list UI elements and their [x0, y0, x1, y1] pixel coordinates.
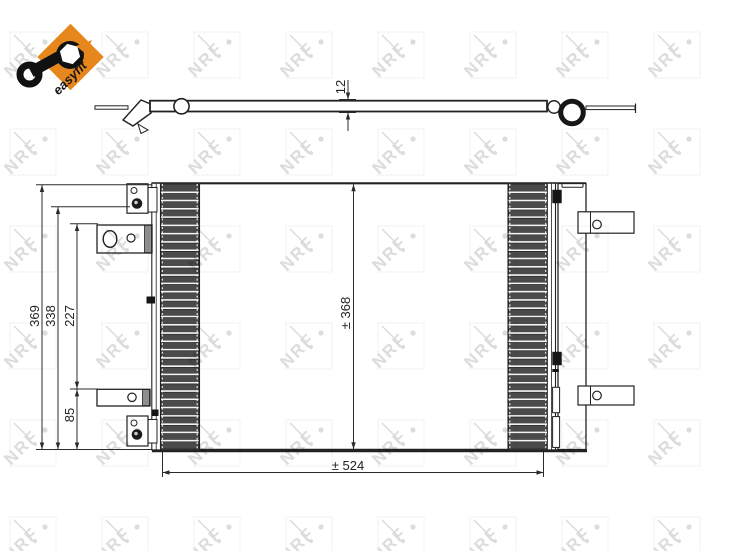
watermark-tile: NRF — [368, 420, 424, 469]
watermark-text: NRF — [644, 232, 686, 274]
watermark-text: NRF — [460, 38, 502, 80]
watermark-text: NRF — [368, 329, 410, 371]
watermark-text: NRF — [644, 329, 686, 371]
watermark-tile: NRF — [92, 226, 148, 275]
watermark-text: NRF — [552, 232, 594, 274]
watermark-tile: NRF — [368, 129, 424, 178]
watermark-text: NRF — [184, 329, 226, 371]
watermark-tile: NRF — [368, 517, 424, 551]
watermark-text: NRF — [644, 38, 686, 80]
watermark-tile: NRF — [92, 323, 148, 372]
watermark-text: NRF — [368, 38, 410, 80]
watermark-tile: NRF — [92, 517, 148, 551]
watermark-tile: NRF — [0, 129, 56, 178]
watermark-text: NRF — [552, 38, 594, 80]
watermark-tile: NRF — [0, 323, 56, 372]
watermark-tile: NRF — [644, 32, 700, 81]
watermark-text: NRF — [276, 135, 318, 177]
watermark-tile: NRF — [552, 32, 608, 81]
watermark-tile: NRF — [276, 420, 332, 469]
watermark-tile: NRF — [0, 517, 56, 551]
technical-drawing-page: 12 — [0, 0, 731, 551]
watermark-text: NRF — [276, 38, 318, 80]
watermark-text: NRF — [368, 232, 410, 274]
watermark-tile: NRF — [184, 226, 240, 275]
watermark-text: NRF — [276, 329, 318, 371]
watermark-tile: NRF — [644, 420, 700, 469]
watermark-text: NRF — [276, 426, 318, 468]
watermark-tile: NRF — [644, 129, 700, 178]
watermark-tile: NRF — [368, 323, 424, 372]
watermark-tile: NRF — [184, 420, 240, 469]
watermark-text: NRF — [184, 135, 226, 177]
watermark-tile: NRF — [276, 226, 332, 275]
easyfit-badge: easyfit — [0, 0, 130, 130]
watermark-tile: NRF — [184, 517, 240, 551]
watermark-tile: NRF — [0, 226, 56, 275]
watermark-tile: NRF — [184, 32, 240, 81]
watermark-text: NRF — [644, 426, 686, 468]
watermark-tile: NRF — [92, 129, 148, 178]
watermark-tile: NRF — [184, 129, 240, 178]
watermark-tile: NRF — [552, 129, 608, 178]
watermark-tile: NRF — [460, 323, 516, 372]
watermark-text: NRF — [92, 135, 134, 177]
watermark-text: NRF — [184, 232, 226, 274]
watermark-tile: NRF — [460, 420, 516, 469]
watermark-text: NRF — [552, 329, 594, 371]
watermark-tile: NRF — [552, 420, 608, 469]
watermark-tile: NRF — [276, 129, 332, 178]
watermark-text: NRF — [184, 38, 226, 80]
watermark-text: NRF — [0, 329, 42, 371]
watermark-text: NRF — [0, 426, 42, 468]
watermark-tile: NRF — [552, 226, 608, 275]
watermark-text: NRF — [0, 135, 42, 177]
watermark-tile: NRF — [368, 32, 424, 81]
watermark-text: NRF — [552, 426, 594, 468]
watermark-text: NRF — [460, 329, 502, 371]
watermark-tile: NRF — [644, 517, 700, 551]
watermark-tile: NRF — [460, 517, 516, 551]
watermark-text: NRF — [184, 426, 226, 468]
watermark-tile: NRF — [0, 420, 56, 469]
watermark-text: NRF — [276, 232, 318, 274]
watermark-tile: NRF — [460, 129, 516, 178]
watermark-tile: NRF — [92, 420, 148, 469]
watermark-tile: NRF — [644, 323, 700, 372]
watermark-text: NRF — [92, 329, 134, 371]
watermark-text: NRF — [460, 232, 502, 274]
watermark-tile: NRF — [184, 323, 240, 372]
watermark-text: NRF — [92, 232, 134, 274]
watermark-text: NRF — [368, 426, 410, 468]
watermark-tile: NRF — [460, 32, 516, 81]
watermark-text: NRF — [460, 135, 502, 177]
watermark-tile: NRF — [644, 226, 700, 275]
watermark-text: NRF — [644, 135, 686, 177]
watermark-tile: NRF — [276, 517, 332, 551]
watermark-text: NRF — [0, 232, 42, 274]
watermark-text: NRF — [460, 426, 502, 468]
watermark-tile: NRF — [368, 226, 424, 275]
watermark-tile: NRF — [276, 323, 332, 372]
watermark-text: NRF — [552, 135, 594, 177]
watermark-tile: NRF — [460, 226, 516, 275]
watermark-tile: NRF — [552, 323, 608, 372]
watermark-text: NRF — [368, 135, 410, 177]
watermark-tile: NRF — [552, 517, 608, 551]
watermark-text: NRF — [92, 426, 134, 468]
watermark-tile: NRF — [276, 32, 332, 81]
